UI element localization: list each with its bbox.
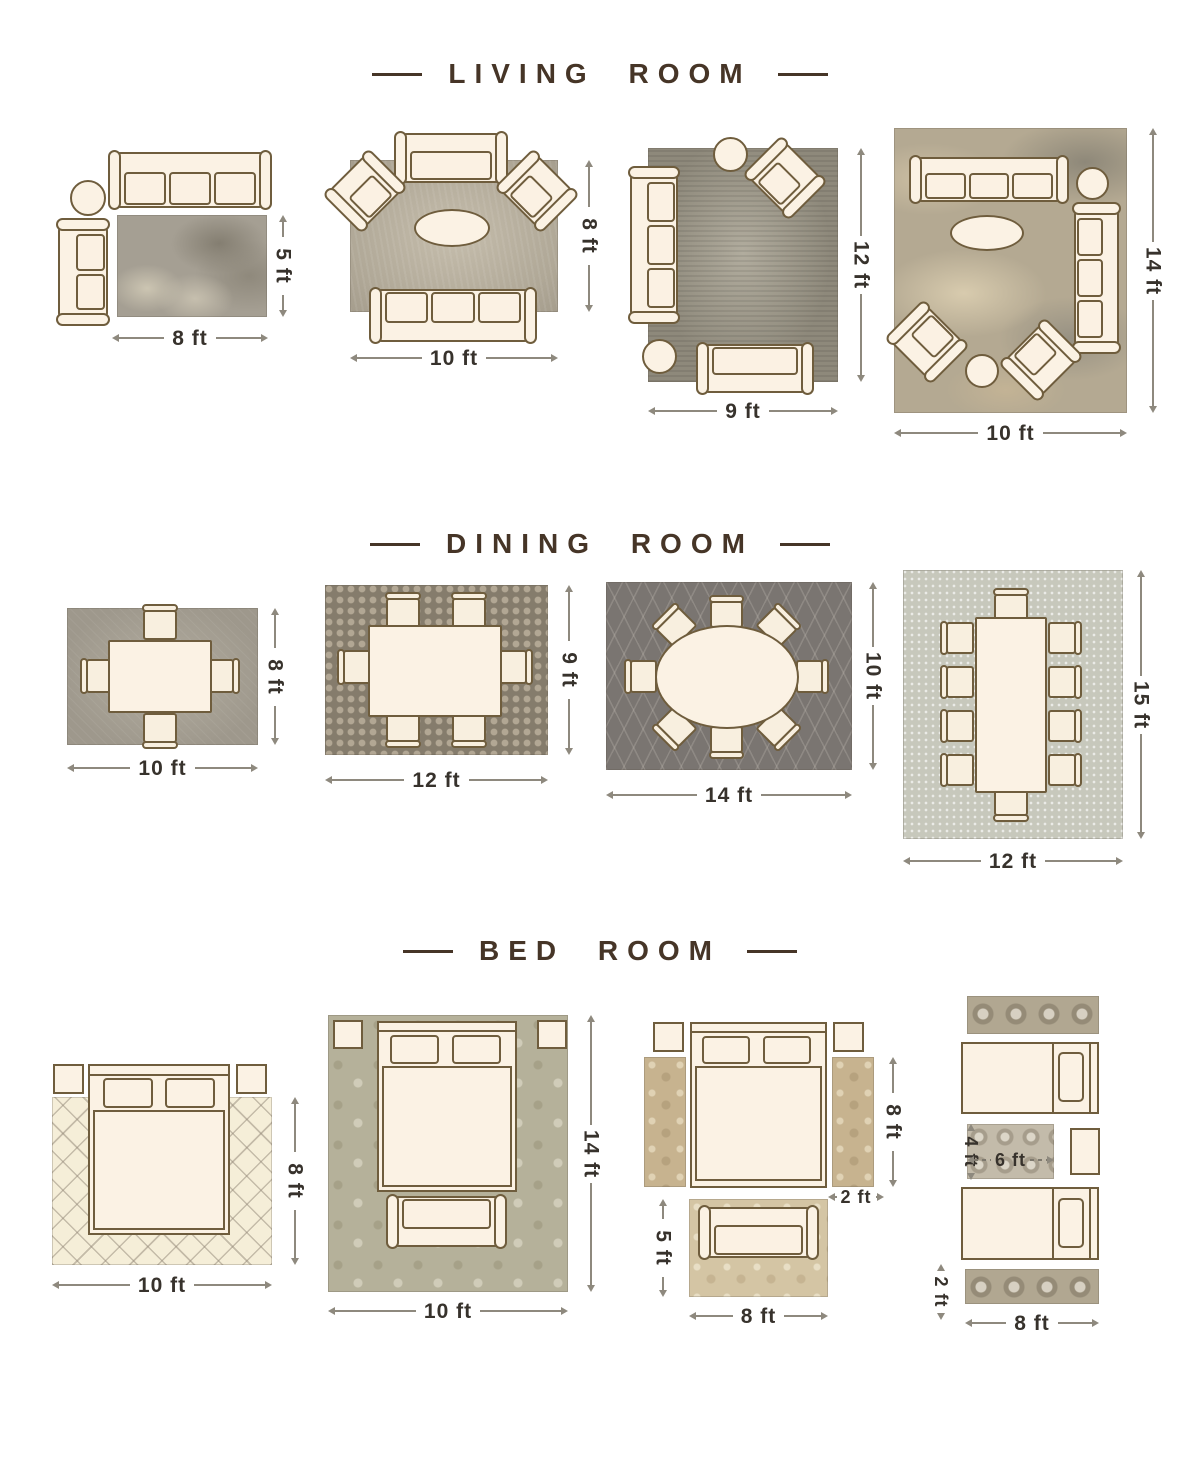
sofa — [630, 170, 678, 320]
headboard — [88, 1064, 230, 1076]
dimension-height: 10 ft — [860, 582, 886, 770]
dining-table — [368, 625, 502, 717]
dimension-label: 10 ft — [130, 758, 194, 779]
sofa-cushions — [647, 182, 675, 308]
bed — [88, 1064, 230, 1235]
sofa — [112, 152, 268, 208]
dimension-width: 6 ft — [967, 1147, 1054, 1173]
nightstand — [1070, 1128, 1100, 1175]
round-side-table — [70, 180, 106, 216]
dimension-height: 15 ft — [1128, 570, 1154, 839]
title-dash — [747, 950, 797, 953]
sofa-cushions — [714, 1225, 803, 1255]
sofa — [373, 289, 533, 342]
sofa-cushions — [712, 347, 798, 375]
dimension-label: 8 ft — [883, 1104, 904, 1140]
dimension-width: 8 ft — [112, 325, 268, 351]
blanket — [93, 1110, 225, 1230]
sofa-cushions — [385, 292, 521, 323]
section-bed-room: BED ROOM — [0, 935, 1200, 967]
dimension-height: 9 ft — [556, 585, 582, 755]
headboard — [377, 1021, 517, 1032]
dimension-height: 14 ft — [578, 1015, 604, 1292]
dining-table — [655, 625, 799, 729]
dining-chair — [143, 610, 177, 640]
dining-chair — [796, 660, 823, 693]
sofa-arm — [806, 1205, 819, 1260]
dimension-label: 6 ft — [991, 1151, 1030, 1169]
dimension-height: 2 ft — [928, 1264, 954, 1310]
dining-chair — [946, 710, 974, 742]
dining-chair — [1048, 666, 1076, 698]
dining-chair — [1048, 710, 1076, 742]
section-title: LIVING ROOM — [448, 58, 751, 90]
pillow — [1058, 1198, 1084, 1248]
dimension-label: 12 ft — [404, 770, 468, 791]
sofa-arm — [909, 155, 922, 204]
blanket — [961, 1187, 1054, 1260]
dimension-height: 12 ft — [848, 148, 874, 382]
dimension-width: 10 ft — [67, 755, 258, 781]
runner-rug — [644, 1057, 686, 1187]
pillow — [452, 1035, 501, 1064]
section-title: DINING ROOM — [446, 528, 754, 560]
twin-bed — [961, 1042, 1099, 1114]
dimension-label: 10 ft — [863, 652, 884, 700]
dimension-height: 8 ft — [880, 1057, 906, 1187]
sofa-arm — [108, 150, 121, 210]
dimension-label: 2 ft — [932, 1273, 950, 1312]
sofa-cushions — [925, 173, 1053, 199]
dimension-width: 9 ft — [648, 398, 838, 424]
headboard — [1089, 1042, 1099, 1114]
dimension-label: 14 ft — [697, 785, 761, 806]
round-side-table — [713, 137, 748, 172]
dimension-width: 8 ft — [965, 1310, 1099, 1336]
sofa-cushions — [1077, 218, 1103, 338]
nightstand — [53, 1064, 84, 1094]
dimension-height: 5 ft — [650, 1199, 676, 1297]
loveseat — [398, 133, 504, 183]
dimension-label: 9 ft — [717, 401, 769, 422]
sofa-arm — [628, 311, 680, 324]
runner-rug — [832, 1057, 874, 1187]
dimension-label: 14 ft — [581, 1129, 602, 1177]
title-dash — [780, 543, 830, 546]
title-dash — [403, 950, 453, 953]
nightstand — [333, 1020, 363, 1049]
section-dining-room: DINING ROOM — [0, 528, 1200, 560]
sofa-arm — [1072, 202, 1121, 215]
loveseat — [700, 344, 810, 393]
dimension-label: 10 ft — [416, 1301, 480, 1322]
dining-chair — [710, 601, 743, 628]
dimension-width: 14 ft — [606, 782, 852, 808]
pillow — [702, 1036, 750, 1064]
dimension-height: 8 ft — [282, 1097, 308, 1265]
headboard — [690, 1022, 827, 1033]
headboard — [1089, 1187, 1099, 1260]
sofa-arm — [494, 1194, 507, 1249]
dining-chair — [1048, 622, 1076, 654]
sofa-arm — [56, 313, 110, 326]
title-dash — [778, 73, 828, 76]
rug — [117, 215, 267, 317]
dining-chair — [946, 622, 974, 654]
rug-size-guide: LIVING ROOM 8 ft 5 ft — [0, 0, 1200, 1467]
dining-chair — [1048, 754, 1076, 786]
dimension-label: 9 ft — [559, 652, 580, 688]
bed — [690, 1022, 827, 1188]
sofa-cushions — [410, 151, 492, 180]
sofa — [1074, 206, 1119, 350]
dining-chair — [143, 713, 177, 743]
dimension-label: 8 ft — [164, 328, 216, 349]
dimension-width: 12 ft — [903, 848, 1123, 874]
dimension-label: 5 ft — [653, 1230, 674, 1266]
dimension-width: 10 ft — [52, 1272, 272, 1298]
dimension-label: 14 ft — [1143, 246, 1164, 294]
dimension-label: 8 ft — [733, 1306, 785, 1327]
dimension-label: 12 ft — [851, 241, 872, 289]
pillow — [763, 1036, 811, 1064]
dining-chair — [452, 598, 486, 628]
dimension-height: 8 ft — [576, 160, 602, 312]
dimension-label: 12 ft — [981, 851, 1045, 872]
bench — [390, 1196, 503, 1247]
dining-chair — [710, 726, 743, 753]
dining-chair — [946, 754, 974, 786]
round-side-table — [1076, 167, 1109, 200]
dimension-width: 10 ft — [894, 420, 1127, 446]
oval-coffee-table — [414, 209, 490, 247]
oval-coffee-table — [950, 215, 1024, 251]
sofa-arm — [259, 150, 272, 210]
dimension-height: 14 ft — [1140, 128, 1166, 413]
dimension-label: 10 ft — [422, 348, 486, 369]
dimension-width: 10 ft — [350, 345, 558, 371]
dimension-label: 10 ft — [978, 423, 1042, 444]
dimension-width: 8 ft — [689, 1303, 828, 1329]
runner-rug — [965, 1269, 1099, 1304]
dimension-width: 10 ft — [328, 1298, 568, 1324]
blanket — [961, 1042, 1054, 1114]
dining-table — [108, 640, 212, 713]
sofa-arm — [524, 287, 537, 344]
sofa-arm — [386, 1194, 399, 1249]
title-dash — [370, 543, 420, 546]
dimension-height: 8 ft — [262, 608, 288, 745]
dimension-label: 8 ft — [1006, 1313, 1058, 1334]
sofa-arm — [1056, 155, 1069, 204]
sofa — [913, 157, 1065, 202]
blanket — [382, 1066, 512, 1187]
nightstand — [236, 1064, 267, 1094]
sofa-arm — [56, 218, 110, 231]
dimension-label: 5 ft — [273, 248, 294, 284]
pillow — [103, 1078, 153, 1108]
dimension-width: 12 ft — [325, 767, 548, 793]
sofa-cushions — [402, 1199, 491, 1229]
sofa-arm — [801, 342, 814, 395]
dining-chair — [946, 666, 974, 698]
dimension-height: 5 ft — [270, 215, 296, 317]
twin-bed — [961, 1187, 1099, 1260]
round-side-table — [642, 339, 677, 374]
dining-chair — [630, 660, 657, 693]
dimension-label: 8 ft — [265, 659, 286, 695]
nightstand — [833, 1022, 864, 1052]
pillow — [165, 1078, 215, 1108]
sofa-arm — [698, 1205, 711, 1260]
runner-rug — [967, 996, 1099, 1034]
dimension-label: 8 ft — [579, 218, 600, 254]
dining-chair — [386, 598, 420, 628]
pillow — [1058, 1052, 1084, 1102]
dimension-width: 2 ft — [828, 1184, 884, 1210]
sofa-arm — [696, 342, 709, 395]
sofa-arm — [369, 287, 382, 344]
dimension-label: 2 ft — [837, 1188, 876, 1206]
blanket — [695, 1066, 822, 1181]
sofa-cushions — [76, 234, 105, 310]
dining-table — [975, 617, 1047, 793]
section-living-room: LIVING ROOM — [0, 58, 1200, 90]
sofa-cushions — [124, 172, 256, 205]
dimension-label: 10 ft — [130, 1275, 194, 1296]
section-title: BED ROOM — [479, 935, 721, 967]
nightstand — [537, 1020, 567, 1049]
dimension-label: 15 ft — [1131, 680, 1152, 728]
bench — [702, 1207, 815, 1258]
round-side-table — [965, 354, 999, 388]
pillow — [390, 1035, 439, 1064]
sofa-arm — [628, 166, 680, 179]
loveseat — [58, 222, 108, 322]
dimension-label: 8 ft — [285, 1163, 306, 1199]
nightstand — [653, 1022, 684, 1052]
bed — [377, 1021, 517, 1192]
title-dash — [372, 73, 422, 76]
